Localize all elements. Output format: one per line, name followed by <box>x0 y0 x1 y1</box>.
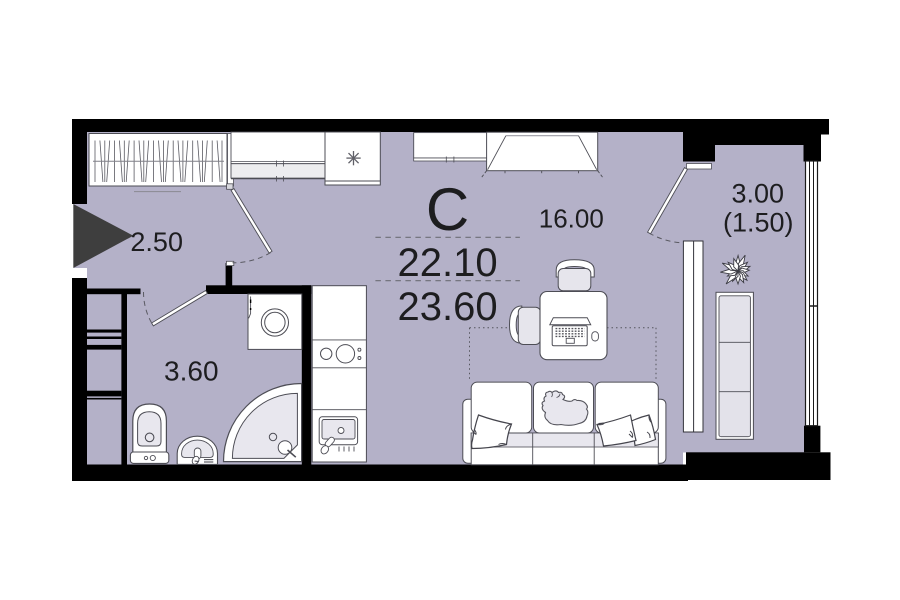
svg-text:16.00: 16.00 <box>539 203 604 233</box>
svg-text:(1.50): (1.50) <box>723 208 794 238</box>
svg-text:23.60: 23.60 <box>398 285 498 329</box>
svg-text:3.60: 3.60 <box>164 356 219 387</box>
svg-text:3.00: 3.00 <box>732 179 785 209</box>
svg-text:2.50: 2.50 <box>130 227 183 257</box>
svg-text:С: С <box>426 176 469 243</box>
svg-text:22.10: 22.10 <box>398 241 498 285</box>
